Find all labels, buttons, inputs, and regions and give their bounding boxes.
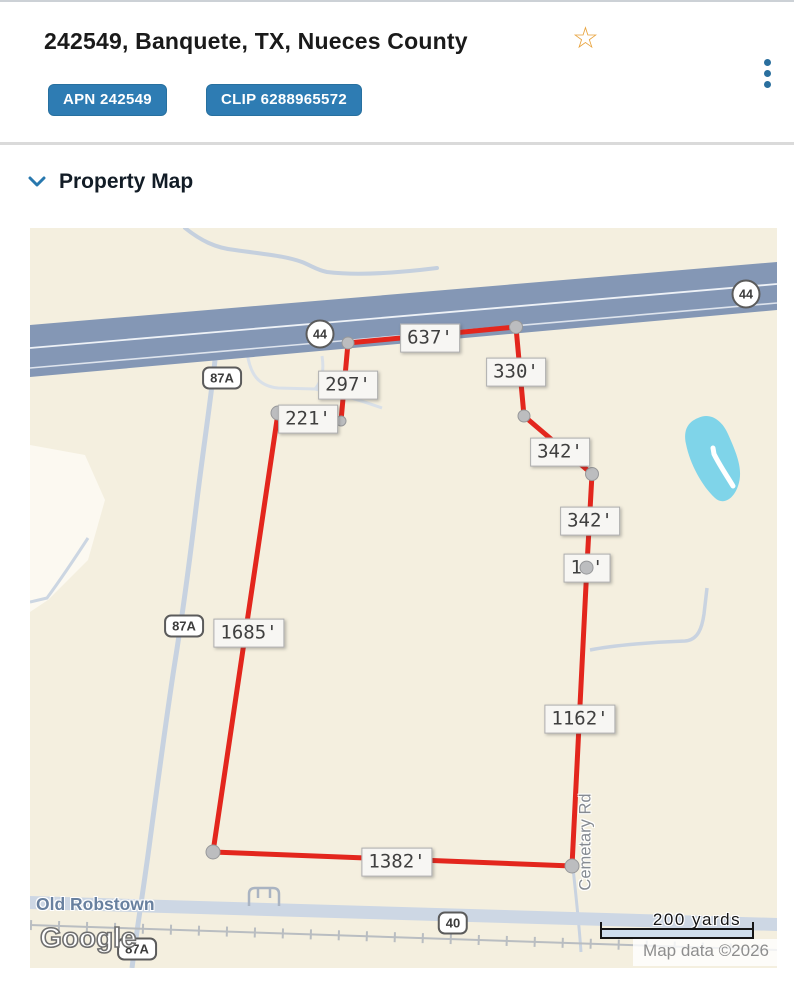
- road-name-cemetery-rd: Cemetary Rd: [577, 793, 596, 890]
- measurement-label: 297': [318, 371, 378, 400]
- measurement-label: 637': [400, 324, 460, 353]
- favorite-star-icon[interactable]: ☆: [572, 24, 599, 54]
- measurement-label: 1382': [361, 848, 432, 877]
- google-logo[interactable]: Google: [40, 922, 136, 954]
- highway-shield-44: 44: [732, 280, 761, 309]
- measurement-label: 1162': [544, 705, 615, 734]
- highway-shield-44: 44: [306, 320, 335, 349]
- map-attribution: Map data ©2026: [633, 939, 777, 966]
- top-border: [0, 0, 794, 2]
- measurement-label: 342': [530, 438, 590, 467]
- overflow-menu-icon[interactable]: [760, 55, 774, 92]
- measurement-label: 221': [278, 405, 338, 434]
- highway-shield-87a: 87A: [164, 615, 204, 638]
- chevron-down-icon: [28, 176, 46, 188]
- scale-bar: [600, 928, 754, 939]
- scale-label: 200 yards: [622, 910, 772, 930]
- section-title: Property Map: [59, 170, 193, 194]
- clip-badge[interactable]: CLIP 6288965572: [206, 84, 362, 116]
- vertex-dot: [580, 561, 594, 575]
- measurement-label: 1': [564, 554, 611, 583]
- divider: [0, 142, 794, 145]
- measurement-label: 342': [560, 507, 620, 536]
- measurement-label: 330': [486, 358, 546, 387]
- page-title: 242549, Banquete, TX, Nueces County: [44, 28, 468, 55]
- measurement-label: 1685': [213, 619, 284, 648]
- road-name-old-robstown: Old Robstown: [36, 894, 155, 915]
- highway-shield-87a: 87A: [202, 367, 242, 390]
- property-detail-page: 242549, Banquete, TX, Nueces County ☆ AP…: [0, 0, 794, 988]
- property-map-section-header[interactable]: Property Map: [28, 170, 193, 194]
- apn-badge[interactable]: APN 242549: [48, 84, 167, 116]
- property-map[interactable]: 637'330'297'221'342'342'1'1685'1162'1382…: [30, 228, 777, 968]
- highway-shield-40: 40: [438, 912, 468, 935]
